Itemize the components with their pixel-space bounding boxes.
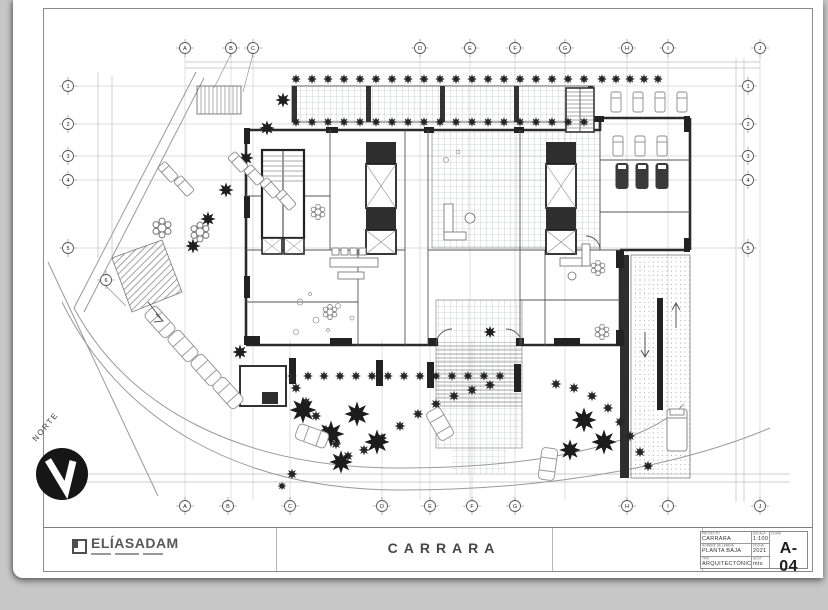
elevator-core-3 <box>546 142 576 254</box>
tipo-value: ARQUITECTÓNICO <box>702 561 750 567</box>
svg-text:1: 1 <box>66 84 69 90</box>
svg-text:3: 3 <box>66 154 69 160</box>
entry-walk-extension <box>452 448 506 474</box>
acot-label: ACOT <box>753 557 767 561</box>
grid-bubble-right-5: 5 <box>739 239 757 257</box>
grid-bubble-bottom-1: A <box>176 497 194 515</box>
proyecto-label: PROYECTO <box>702 532 745 536</box>
grid-bubble-top-10: J <box>751 39 769 57</box>
svg-text:D: D <box>418 46 422 52</box>
escala-value: 1:100 <box>753 536 768 542</box>
svg-text:D: D <box>380 504 384 510</box>
grid-bubble-top-2: B <box>222 39 240 57</box>
grid-bubble-right-2: 2 <box>739 115 757 133</box>
grid-bubble-bottom-6: F <box>463 497 481 515</box>
svg-text:C: C <box>288 504 292 510</box>
svg-text:4: 4 <box>66 178 69 184</box>
svg-text:4: 4 <box>746 178 749 184</box>
deck-area <box>197 86 241 114</box>
svg-text:A: A <box>183 504 187 510</box>
grid-bubble-top-3: C <box>244 39 262 57</box>
grid-bubble-top-4: D <box>411 39 429 57</box>
grid-bubble-top-7: G <box>556 39 574 57</box>
grid-bubble-left-2: 2 <box>59 115 77 133</box>
grid-bubble-right-1: 1 <box>739 77 757 95</box>
gym-treadmills <box>616 163 669 189</box>
svg-text:B: B <box>226 504 230 510</box>
grid-bubble-top-6: F <box>506 39 524 57</box>
stair-top-right <box>566 88 594 132</box>
parked-cars <box>143 305 244 410</box>
clave-label: CLAVE <box>771 532 781 536</box>
parking-ramp-hatch <box>112 240 182 312</box>
grid-bubble-top-1: A <box>176 39 194 57</box>
grid-bubble-bottom-7: G <box>506 497 524 515</box>
svg-text:2: 2 <box>746 122 749 128</box>
title-block: PROYECTOCARRARA NOMBRE DE LÁMINAPLANTA B… <box>700 531 808 569</box>
grid-bubble-left-1: 1 <box>59 77 77 95</box>
svg-text:J: J <box>759 46 762 52</box>
svg-text:A: A <box>183 46 187 52</box>
svg-text:H: H <box>625 46 629 52</box>
fecha-value: 2021 <box>753 548 768 554</box>
grid-bubble-bottom-5: E <box>421 497 439 515</box>
sheet-number: A-04 <box>770 540 807 576</box>
escala-label: ESCALA <box>753 532 767 536</box>
grid-bubble-left-6: 6 <box>97 271 115 289</box>
north-arrow: NORTE <box>31 410 88 500</box>
sheet-title: CARRARA <box>306 540 582 556</box>
grid-bubble-bottom-2: B <box>219 497 237 515</box>
grid-bubble-left-4: 4 <box>59 171 77 189</box>
svg-text:1: 1 <box>746 84 749 90</box>
grid-bubble-top-5: E <box>461 39 479 57</box>
grid-bubble-bottom-4: D <box>373 497 391 515</box>
svg-text:G: G <box>563 46 567 52</box>
ramp-van <box>667 409 687 451</box>
grid-bubble-top-8: H <box>618 39 636 57</box>
grid-bubble-bottom-9: I <box>659 497 677 515</box>
grid-bubble-top-9: I <box>659 39 677 57</box>
svg-text:2: 2 <box>66 122 69 128</box>
acot-value: mts <box>753 561 768 567</box>
svg-text:E: E <box>428 504 432 510</box>
svg-text:6: 6 <box>104 278 107 284</box>
svg-text:C: C <box>251 46 255 52</box>
grid-bubble-right-3: 3 <box>739 147 757 165</box>
lamina-value: PLANTA BAJA <box>702 548 750 554</box>
grid-bubble-bottom-8: H <box>618 497 636 515</box>
floor-plan-drawing: NORTE A B C D E F G H I J A B C D E F G … <box>0 0 828 528</box>
logo-tagline <box>91 553 179 555</box>
svg-text:E: E <box>468 46 472 52</box>
fecha-label: FECHA <box>753 544 767 548</box>
north-label: NORTE <box>31 410 61 443</box>
title-strip-divider <box>276 528 277 571</box>
svg-text:H: H <box>625 504 629 510</box>
lamina-label: NOMBRE DE LÁMINA <box>702 544 745 548</box>
svg-text:J: J <box>759 504 762 510</box>
entry-steps <box>436 342 522 408</box>
tipo-label: TIPO <box>702 557 745 561</box>
title-strip: ELÍASADAM CARRARA PROYECTOCARRARA NOMBRE… <box>44 527 812 571</box>
grid-bubble-bottom-3: C <box>281 497 299 515</box>
grid-bubble-bottom-10: J <box>751 497 769 515</box>
grid-bubble-right-4: 4 <box>739 171 757 189</box>
logo-text: ELÍASADAM <box>91 537 179 550</box>
grid-bubble-left-3: 3 <box>59 147 77 165</box>
firm-logo: ELÍASADAM <box>72 537 179 555</box>
svg-text:3: 3 <box>746 154 749 160</box>
svg-text:5: 5 <box>66 246 69 252</box>
grid-bubble-left-5: 5 <box>59 239 77 257</box>
logo-mark-icon <box>72 539 87 554</box>
guard-booth-fixture <box>262 392 278 404</box>
ramp-divider-wall <box>657 298 663 410</box>
ramp-wall <box>620 255 629 478</box>
svg-text:B: B <box>229 46 233 52</box>
svg-text:5: 5 <box>746 246 749 252</box>
elevator-core-2 <box>366 142 396 254</box>
shrub-row-above-pergola <box>289 72 665 86</box>
svg-text:G: G <box>513 504 517 510</box>
proyecto-value: CARRARA <box>702 536 750 542</box>
